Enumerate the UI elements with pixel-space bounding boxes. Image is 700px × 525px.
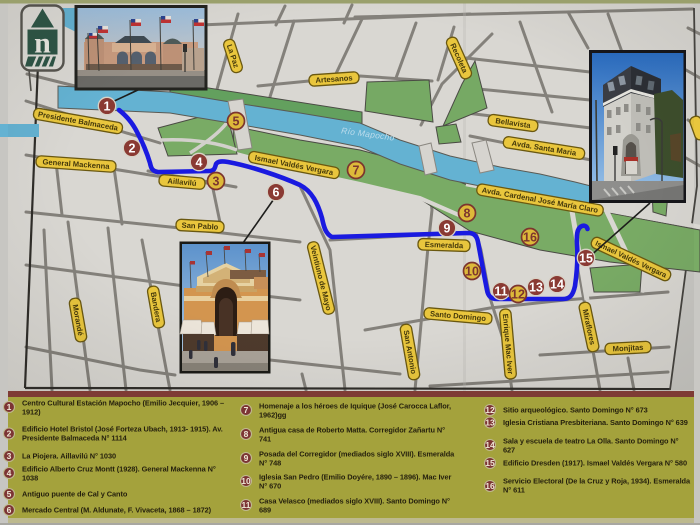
svg-text:Edificio Alberto Cruz Montt (1: Edificio Alberto Cruz Montt (1928). Gene… (22, 465, 216, 474)
svg-text:Antiguo puente de Cal y Canto: Antiguo puente de Cal y Canto (22, 490, 128, 499)
svg-text:1: 1 (7, 402, 12, 412)
svg-text:1912): 1912) (22, 408, 41, 417)
svg-text:2: 2 (7, 429, 12, 439)
svg-text:Iglesia Cristiana Presbiterian: Iglesia Cristiana Presbiteriana. Santo D… (503, 418, 688, 427)
svg-text:Homenaje a los héroes de Iquiq: Homenaje a los héroes de Iquique (José C… (259, 402, 451, 411)
svg-text:6: 6 (7, 505, 12, 515)
svg-text:7: 7 (244, 405, 249, 415)
svg-text:11: 11 (242, 500, 251, 510)
svg-text:Antigua casa de Roberto Matta.: Antigua casa de Roberto Matta. Corregido… (259, 426, 445, 435)
svg-text:Centro Cultural Estación Mapoc: Centro Cultural Estación Mapocho (Emilio… (22, 399, 224, 408)
svg-text:Servicio Electoral (De la Cruz: Servicio Electoral (De la Cruz y Roja, 1… (503, 477, 691, 486)
svg-text:Sala y escuela de teatro La Ol: Sala y escuela de teatro La Olla. Santo … (503, 437, 679, 446)
svg-text:5: 5 (7, 489, 12, 499)
svg-text:3: 3 (7, 451, 12, 461)
svg-text:14: 14 (485, 440, 495, 450)
svg-text:Casa Velasco (mediados siglo X: Casa Velasco (mediados siglo XVIII). San… (259, 497, 450, 506)
svg-text:16: 16 (485, 481, 495, 491)
svg-text:8: 8 (244, 429, 249, 439)
svg-text:10: 10 (241, 476, 251, 486)
svg-text:N° 670: N° 670 (259, 482, 281, 491)
svg-text:N° 611: N° 611 (503, 486, 525, 495)
svg-text:9: 9 (244, 453, 249, 463)
svg-text:N° 748: N° 748 (259, 459, 281, 468)
svg-text:12: 12 (485, 405, 495, 415)
svg-text:1038: 1038 (22, 474, 38, 483)
svg-text:1962)gg: 1962)gg (259, 411, 287, 420)
svg-text:627: 627 (503, 446, 515, 455)
svg-text:Iglesia San Pedro (Emilio Doyé: Iglesia San Pedro (Emilio Doyére, 1890 –… (259, 473, 451, 482)
svg-text:Edificio Dresden (1917). Ismae: Edificio Dresden (1917). Ismael Valdés V… (503, 459, 687, 468)
svg-text:4: 4 (7, 468, 12, 478)
svg-text:Mercado Central (M. Aldunate,: Mercado Central (M. Aldunate, F. Vivacet… (22, 506, 212, 515)
svg-text:La Piojera. Aillavilú N° 1030: La Piojera. Aillavilú N° 1030 (22, 452, 116, 461)
svg-text:741: 741 (259, 435, 271, 444)
svg-text:13: 13 (485, 418, 495, 428)
svg-text:689: 689 (259, 506, 271, 515)
svg-text:Posada del Corregidor (mediado: Posada del Corregidor (mediados siglo XV… (259, 450, 455, 459)
svg-text:Edificio Hotel Bristol (José F: Edificio Hotel Bristol (José Forteza Uba… (22, 425, 223, 434)
svg-text:15: 15 (485, 458, 495, 468)
svg-text:Presidente Balmaceda N° 1114: Presidente Balmaceda N° 1114 (22, 434, 128, 443)
svg-text:Sitio arqueológico. Santo Domi: Sitio arqueológico. Santo Domingo N° 673 (503, 406, 648, 415)
